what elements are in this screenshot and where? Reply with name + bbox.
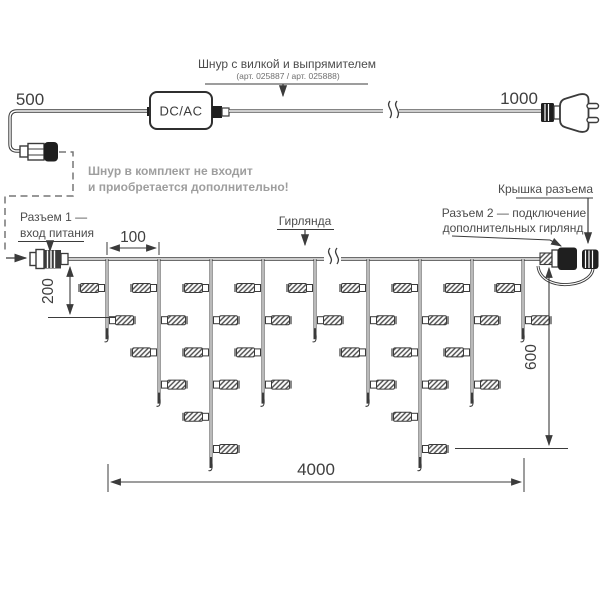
lamp-socket-icon <box>371 317 377 324</box>
garland-drop <box>392 259 448 471</box>
dim-200: 200 <box>40 267 116 318</box>
diagram-page: 500 DC/AC 1000 Шнур с вилкой и в <box>0 0 600 600</box>
lamp-socket-icon <box>371 381 377 388</box>
garland-drop <box>340 259 396 406</box>
garland-drop <box>183 259 239 471</box>
garland-drop <box>444 259 500 406</box>
lamp-icon <box>272 316 290 325</box>
lamp-socket-icon <box>423 381 429 388</box>
lamp-icon <box>481 316 499 325</box>
lamp-socket-icon <box>475 381 481 388</box>
lamp-socket-icon <box>266 381 272 388</box>
connector2-leader <box>452 236 550 240</box>
lamp-socket-icon <box>162 381 168 388</box>
lamp-socket-icon <box>214 381 220 388</box>
lamp-icon <box>116 316 134 325</box>
adapter-label: DC/AC <box>160 104 203 119</box>
lamp-icon <box>168 380 186 389</box>
lamp-icon <box>481 380 499 389</box>
lamp-socket-icon <box>266 317 272 324</box>
dim-100: 100 <box>107 229 159 255</box>
lamp-icon <box>377 316 395 325</box>
lamp-icon <box>497 284 515 293</box>
garland-drop <box>287 259 343 342</box>
lamp-socket-icon <box>412 285 418 292</box>
lamp-icon <box>220 445 238 454</box>
lamp-icon <box>133 348 151 357</box>
garland-drop <box>131 259 187 406</box>
dcac-adapter: DC/AC <box>147 92 229 129</box>
lamp-socket-icon <box>526 317 532 324</box>
lamp-socket-icon <box>464 285 470 292</box>
lamp-socket-icon <box>214 446 220 453</box>
lamp-icon <box>237 284 255 293</box>
dim-500-label: 500 <box>16 90 44 109</box>
note-line2: и приобретается дополнительно! <box>88 180 289 194</box>
connector-cap-icon <box>582 250 599 270</box>
lamp-socket-icon <box>162 317 168 324</box>
lamp-icon <box>289 284 307 293</box>
garland-label: Гирлянда <box>279 214 332 228</box>
lamp-icon <box>81 284 99 293</box>
lamp-socket-icon <box>203 413 209 420</box>
garland-drop <box>79 259 135 342</box>
lamp-icon <box>446 284 464 293</box>
lamp-icon <box>429 316 447 325</box>
lamp-icon <box>185 412 203 421</box>
connector1-label-line1: Разъем 1 — <box>20 210 87 224</box>
lamp-icon <box>394 348 412 357</box>
lamp-icon <box>133 284 151 293</box>
lamp-icon <box>342 348 360 357</box>
lamp-socket-icon <box>423 446 429 453</box>
lamp-socket-icon <box>475 317 481 324</box>
lamp-icon <box>532 316 550 325</box>
lamp-socket-icon <box>515 285 521 292</box>
connector2-arrow-icon <box>550 240 561 246</box>
garland-diagram: 500 DC/AC 1000 Шнур с вилкой и в <box>0 0 600 600</box>
lamp-icon <box>324 316 342 325</box>
garland-drop <box>235 259 291 406</box>
lamp-icon <box>220 380 238 389</box>
dim-4000-label: 4000 <box>297 460 335 479</box>
connector1-icon <box>30 250 68 269</box>
lamp-icon <box>377 380 395 389</box>
dim-100-label: 100 <box>120 229 146 246</box>
garland-drop <box>495 259 551 342</box>
lamp-socket-icon <box>151 285 157 292</box>
lamp-socket-icon <box>360 349 366 356</box>
cord-label: Шнур с вилкой и выпрямителем <box>198 57 376 71</box>
lamp-icon <box>429 445 447 454</box>
dim-200-label: 200 <box>40 278 57 304</box>
cord-right-segment <box>229 101 541 120</box>
lamp-icon <box>237 348 255 357</box>
lamp-socket-icon <box>318 317 324 324</box>
lamp-socket-icon <box>464 349 470 356</box>
lamp-icon <box>429 380 447 389</box>
note-line1: Шнур в комплект не входит <box>88 164 253 178</box>
lamp-socket-icon <box>307 285 313 292</box>
lamp-socket-icon <box>203 285 209 292</box>
lamp-socket-icon <box>151 349 157 356</box>
lamp-icon <box>394 284 412 293</box>
connector1-label-line2: вход питания <box>20 226 94 240</box>
lamp-socket-icon <box>255 349 261 356</box>
lamp-icon <box>342 284 360 293</box>
dim-1000-label: 1000 <box>500 89 538 108</box>
lamp-socket-icon <box>423 317 429 324</box>
lamp-socket-icon <box>412 349 418 356</box>
lamp-icon <box>185 284 203 293</box>
lamp-icon <box>446 348 464 357</box>
connector2-label-line2: дополнительных гирлянд <box>443 221 584 235</box>
lamp-icon <box>168 316 186 325</box>
lamp-icon <box>272 380 290 389</box>
wire-break <box>324 248 341 266</box>
lamp-icon <box>394 412 412 421</box>
lamp-icon <box>220 316 238 325</box>
mains-plug-icon <box>541 94 599 132</box>
cord-plug-connector-icon <box>20 142 58 162</box>
lamp-socket-icon <box>203 349 209 356</box>
lamp-socket-icon <box>255 285 261 292</box>
connector2-label-line1: Разъем 2 — подключение <box>442 206 587 220</box>
dim-4000: 4000 <box>108 458 524 492</box>
lamp-socket-icon <box>412 413 418 420</box>
lamp-icon <box>185 348 203 357</box>
garland-drops <box>79 259 551 471</box>
cord-art-label: (арт. 025887 / арт. 025888) <box>236 71 340 81</box>
lamp-socket-icon <box>214 317 220 324</box>
cap-label: Крышка разъема <box>498 182 593 196</box>
dim-600-label: 600 <box>523 344 540 370</box>
lamp-socket-icon <box>99 285 105 292</box>
lamp-socket-icon <box>360 285 366 292</box>
